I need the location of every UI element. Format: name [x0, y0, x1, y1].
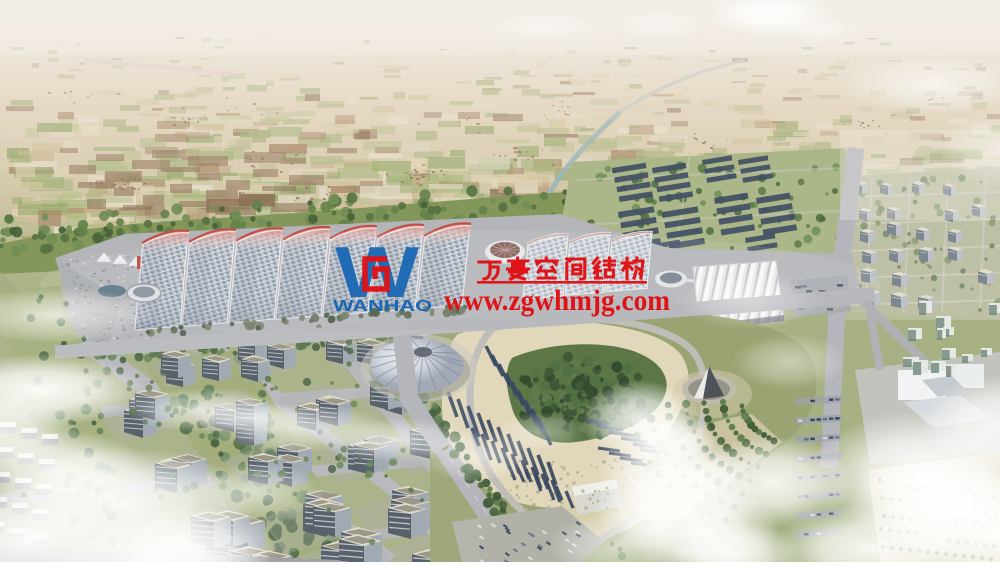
svg-text:WANHAO: WANHAO — [333, 298, 432, 315]
svg-text:www.zgwhmjg.com: www.zgwhmjg.com — [444, 284, 670, 317]
